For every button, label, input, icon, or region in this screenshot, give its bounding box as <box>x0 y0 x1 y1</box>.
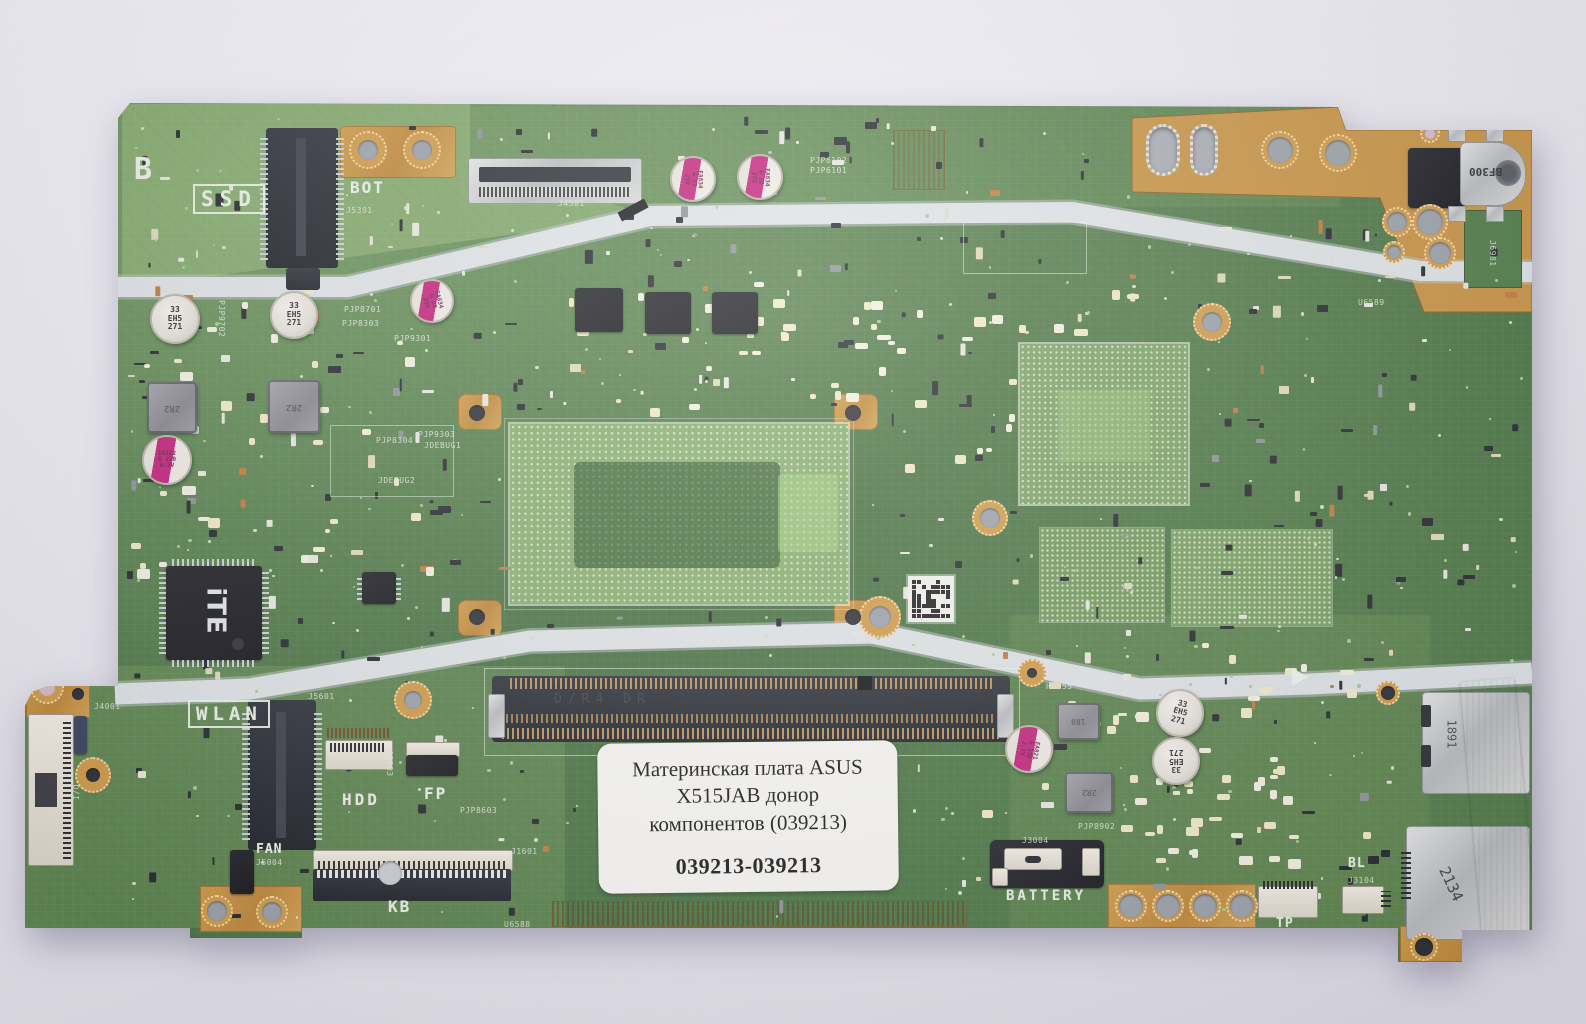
silkscreen-label-ssd: SSD <box>193 184 265 214</box>
refdes-h6557: H6557 <box>1196 230 1223 239</box>
refdes-pjp8701: PJP8701 <box>344 305 381 314</box>
refdes-u6588: U6588 <box>504 920 531 929</box>
refdes-j3004: J3004 <box>1022 836 1049 845</box>
label-line-2: X515JAB донор <box>676 781 819 810</box>
silkscreen-label-bl: BL <box>1348 856 1366 871</box>
refdes-pjp8304: PJP8304 <box>376 436 413 445</box>
silkscreen-label-fp: FP <box>424 784 447 803</box>
refdes-jdebug2: JDEBUG2 <box>378 476 415 485</box>
motherboard-photo: 2R2 2R2 1R0 2R2 iTE <box>0 0 1586 1024</box>
refdes-j3103: J3103 <box>385 750 394 777</box>
refdes-pjp8603: PJP8603 <box>460 806 497 815</box>
refdes-jdebug1: JDEBUG1 <box>424 441 461 450</box>
refdes-pjp9303: PJP9303 <box>418 430 455 439</box>
refdes-pjp8201: PJP8201 <box>402 264 439 273</box>
refdes-pjp9301: PJP9301 <box>394 334 431 343</box>
label-line-1: Материнская плата ASUS <box>632 754 863 784</box>
photo-scene: 2R2 2R2 1R0 2R2 iTE <box>0 0 1586 1024</box>
refdes-j6981: J6981 <box>1488 240 1497 267</box>
refdes-j5301: J5301 <box>346 206 373 215</box>
silkscreen-label-wlan: WLAN <box>188 700 270 728</box>
refdes-pjp9702: PJP9702 <box>217 300 226 337</box>
info-label: Материнская плата ASUS X515JAB донор ком… <box>597 740 899 894</box>
refdes-pjp8303: PJP8303 <box>342 319 379 328</box>
silkscreen-label-fan: FAN <box>256 842 282 857</box>
refdes-j5004: J5004 <box>256 858 283 867</box>
label-line-3: компонентов (039213) <box>649 808 847 838</box>
silkscreen-label-bot: BOT <box>350 178 385 197</box>
pcb-board: 2R2 2R2 1R0 2R2 iTE <box>0 0 1586 1024</box>
refdes-j5601: J5601 <box>308 692 335 701</box>
silkscreen-label-b: B <box>134 152 152 187</box>
refdes-u6589: U6589 <box>1358 298 1385 307</box>
refdes-h6555: H6555 <box>1046 682 1073 691</box>
refdes-j4501: J4501 <box>558 199 585 208</box>
silkscreen-label-hdd: HDD <box>342 790 380 809</box>
refdes-j1601: J1601 <box>511 847 538 856</box>
refdes-pjp8902: PJP8902 <box>1078 822 1115 831</box>
refdes-j3104: J3104 <box>1348 876 1375 885</box>
refdes-pjp6102: PJP6102 <box>810 156 847 165</box>
label-code: 039213-039213 <box>676 852 822 880</box>
refdes-pjp6101: PJP6101 <box>810 166 847 175</box>
silkscreen-label-battery: BATTERY <box>1006 888 1086 904</box>
silkscreen-label-tp: TP <box>1276 916 1294 931</box>
refdes-io: I/O <box>72 784 81 800</box>
silkscreen-label-kb: KB <box>388 897 411 916</box>
refdes-j4001: J4001 <box>94 702 121 711</box>
